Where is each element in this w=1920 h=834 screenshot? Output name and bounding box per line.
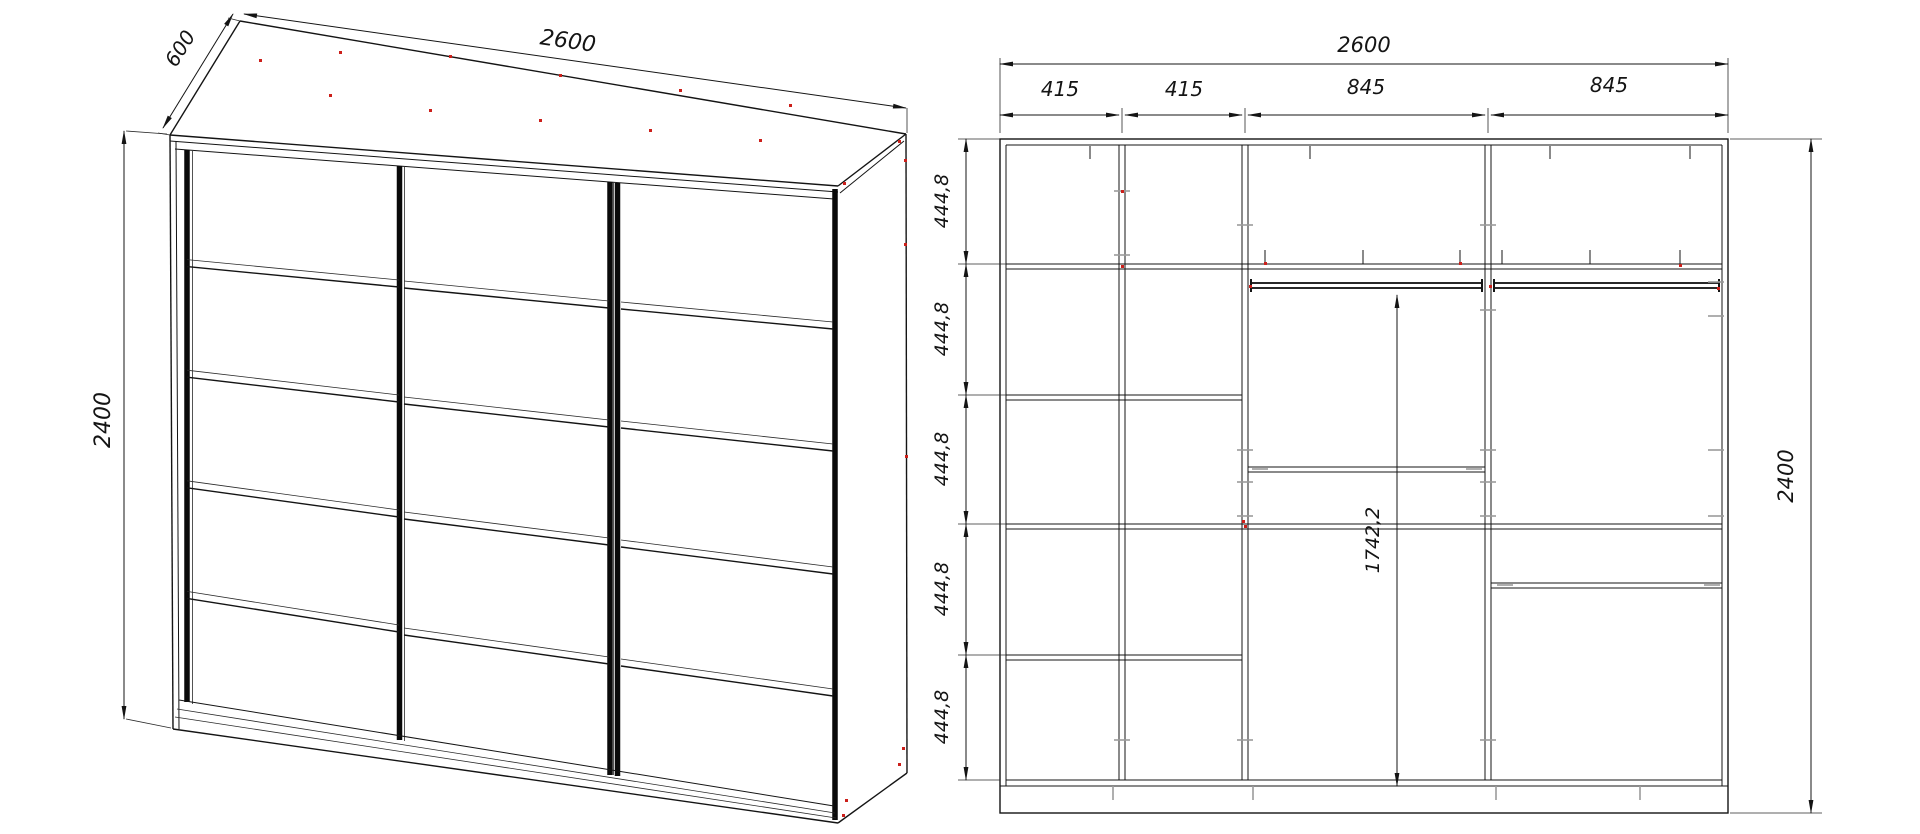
bottom-track [175,700,836,818]
drawing-sheet: 600 2600 2400 [0,0,1920,834]
dim-section-label-4: 845 [1590,73,1628,97]
dim-row-label-4: 444,8 [931,562,953,616]
dim-depth-label: 600 [160,26,200,71]
dim-row-label-1: 444,8 [931,174,953,228]
dim-total-height-label: 2400 [1774,449,1798,502]
door-divider-rails [187,260,833,696]
dim-height-3d: 2400 [91,131,171,728]
drawing-canvas: 600 2600 2400 [0,0,1920,834]
red-dowel-marks-elevation [1121,190,1720,528]
dim-hanging-height: 1742,2 [1362,295,1397,786]
dim-total-height: 2400 [1730,139,1822,813]
dim-row-label-3: 444,8 [931,432,953,486]
dim-section-label-3: 845 [1347,75,1385,99]
dim-height-label-3d: 2400 [91,392,116,448]
shelf-lines [958,139,1722,780]
dim-sections: 415 415 845 845 [1000,73,1728,133]
wardrobe-3d-outline [170,21,907,823]
dim-row-label-5: 444,8 [931,690,953,744]
wardrobe-3d-view: 600 2600 2400 [91,14,908,823]
plinth [1113,786,1640,800]
partitions [1119,145,1491,780]
dim-row-label-2: 444,8 [931,302,953,356]
dim-width-3d: 2600 [244,14,907,133]
dim-hanging-label: 1742,2 [1362,507,1384,573]
dim-section-label-1: 415 [1041,77,1079,101]
dim-depth-3d: 600 [158,14,240,135]
elevation-view: 2600 415 415 845 845 444,8 444,8 444,8 [931,33,1822,813]
dim-width-label-3d: 2600 [538,25,597,58]
dim-total-width-label: 2600 [1337,33,1390,57]
connector-ticks [1090,146,1724,740]
dim-row-heights: 444,8 444,8 444,8 444,8 444,8 [931,139,966,780]
dim-section-label-2: 415 [1165,77,1203,101]
sliding-door-stiles [187,150,835,820]
carcass-outline [1000,139,1728,813]
